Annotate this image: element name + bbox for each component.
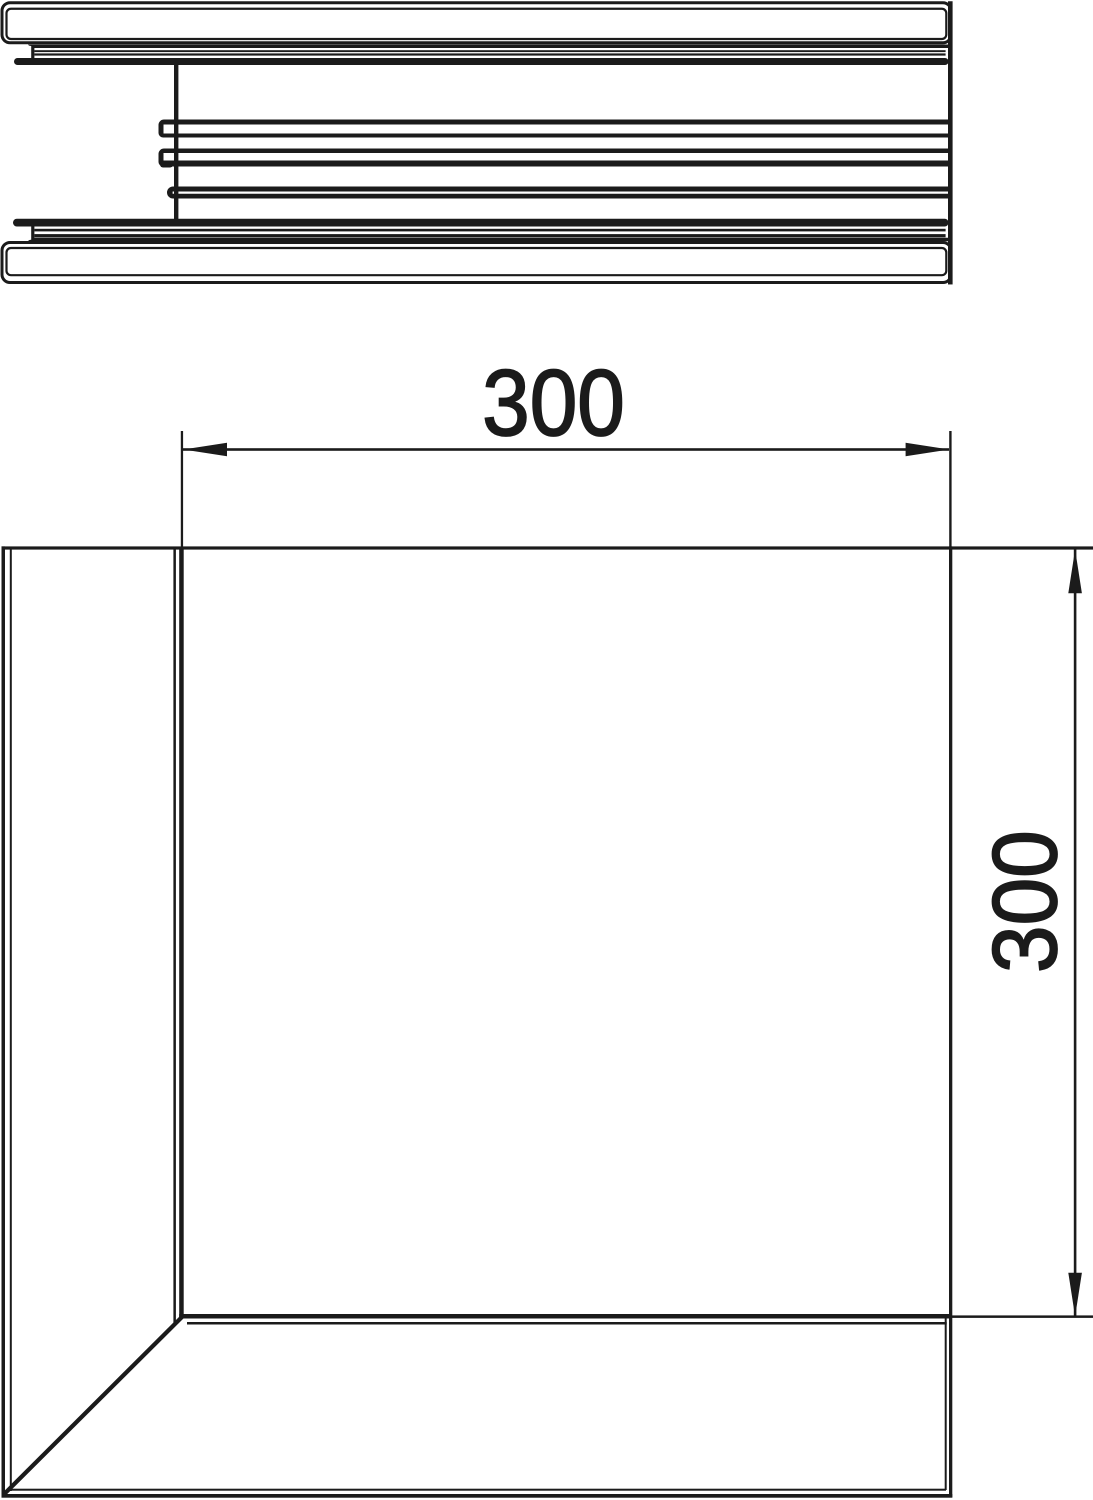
- svg-text:300: 300: [974, 830, 1076, 973]
- svg-text:300: 300: [482, 351, 625, 456]
